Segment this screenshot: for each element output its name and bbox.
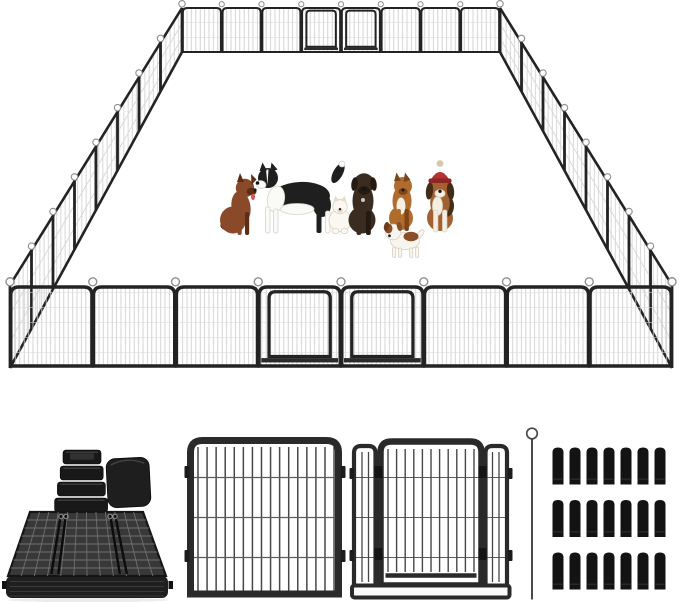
stake-loop: [219, 2, 224, 7]
dog-brown-dog-sitting: [219, 173, 257, 235]
stake-loop: [420, 278, 428, 286]
stake-loop: [299, 2, 304, 7]
fence-panel: [425, 287, 506, 366]
side-strip: [354, 446, 376, 586]
stake-loop: [626, 208, 632, 214]
connector-tab: [350, 468, 355, 479]
hinge: [375, 548, 383, 560]
fence-panel: [461, 8, 499, 52]
stake-loop: [540, 70, 546, 76]
side-strip: [486, 446, 508, 586]
stake-loop: [497, 1, 503, 7]
hinge: [479, 466, 487, 478]
stake-loop: [583, 139, 589, 145]
base-rail: [352, 586, 510, 598]
fence-panel: [183, 8, 221, 52]
stake-loop: [6, 278, 14, 286]
fence-panel: [302, 8, 340, 52]
stake-loop: [254, 278, 262, 286]
door-sill: [304, 48, 338, 50]
connector-tab: [508, 468, 513, 479]
fence-panel: [342, 8, 380, 52]
stake-loop: [503, 278, 511, 286]
dog-beagle-with-red-hat: [425, 160, 455, 232]
fence-panel: [223, 8, 261, 52]
stake-loop: [28, 243, 34, 249]
ground-stake-detail: [527, 428, 538, 599]
connector-tab: [341, 550, 346, 562]
stake-loop: [585, 278, 593, 286]
fence-panel: [262, 8, 300, 52]
fence-panel: [507, 287, 588, 366]
stake-loop: [604, 174, 610, 180]
stake-loop: [458, 2, 463, 7]
playpen-front-wall: [6, 278, 676, 366]
stake-loop: [259, 2, 264, 7]
connector-tab: [350, 550, 355, 561]
stake-loop: [527, 428, 538, 439]
folded-panels-detail: [2, 512, 173, 602]
playpen-scene: [0, 0, 679, 602]
fence-panel: [382, 8, 420, 52]
door-sill: [261, 358, 338, 362]
connector-tab: [185, 466, 190, 478]
dog-tan-dog-sitting: [389, 173, 413, 232]
dog-white-pomeranian: [329, 196, 351, 234]
stake-loop: [647, 243, 653, 249]
single-panel-detail: [185, 441, 346, 595]
stake-loop: [337, 278, 345, 286]
connector-tab: [508, 550, 513, 561]
playpen-back-wall: [179, 2, 502, 52]
hinge: [375, 466, 383, 478]
stake-loop: [179, 1, 185, 7]
fence-panel: [11, 287, 92, 366]
fence-panel: [590, 287, 671, 366]
door-sill: [344, 48, 378, 50]
fence-panel: [94, 287, 175, 366]
fence-panel: [342, 287, 423, 366]
connector-tab: [341, 466, 346, 478]
dog-dark-mastiff-sitting: [349, 173, 378, 235]
stake-loop: [157, 35, 163, 41]
stake-loop: [114, 104, 120, 110]
hinge: [479, 548, 487, 560]
anchor-pegs-detail: [553, 448, 666, 590]
stake-loop: [668, 278, 676, 286]
stake-loop: [93, 139, 99, 145]
fence-panel: [259, 287, 340, 366]
stake-loop: [50, 208, 56, 214]
product-image: [0, 0, 679, 602]
door-sill: [344, 358, 421, 362]
rubber-foot-cube: [106, 457, 152, 508]
stake-loop: [518, 35, 524, 41]
fence-panel: [421, 8, 459, 52]
stake-loop: [172, 278, 180, 286]
stake-loop: [136, 70, 142, 76]
stake-loop: [338, 2, 343, 7]
stake-loop: [89, 278, 97, 286]
door-panel-detail: [350, 442, 513, 598]
dogs: [219, 160, 455, 257]
stake-loop: [418, 2, 423, 7]
stake-loop: [378, 2, 383, 7]
stake-loop: [71, 174, 77, 180]
stake-loop: [561, 104, 567, 110]
connector-tab: [185, 550, 190, 562]
fence-panel: [176, 287, 257, 366]
corner-feet-detail: [55, 450, 152, 512]
